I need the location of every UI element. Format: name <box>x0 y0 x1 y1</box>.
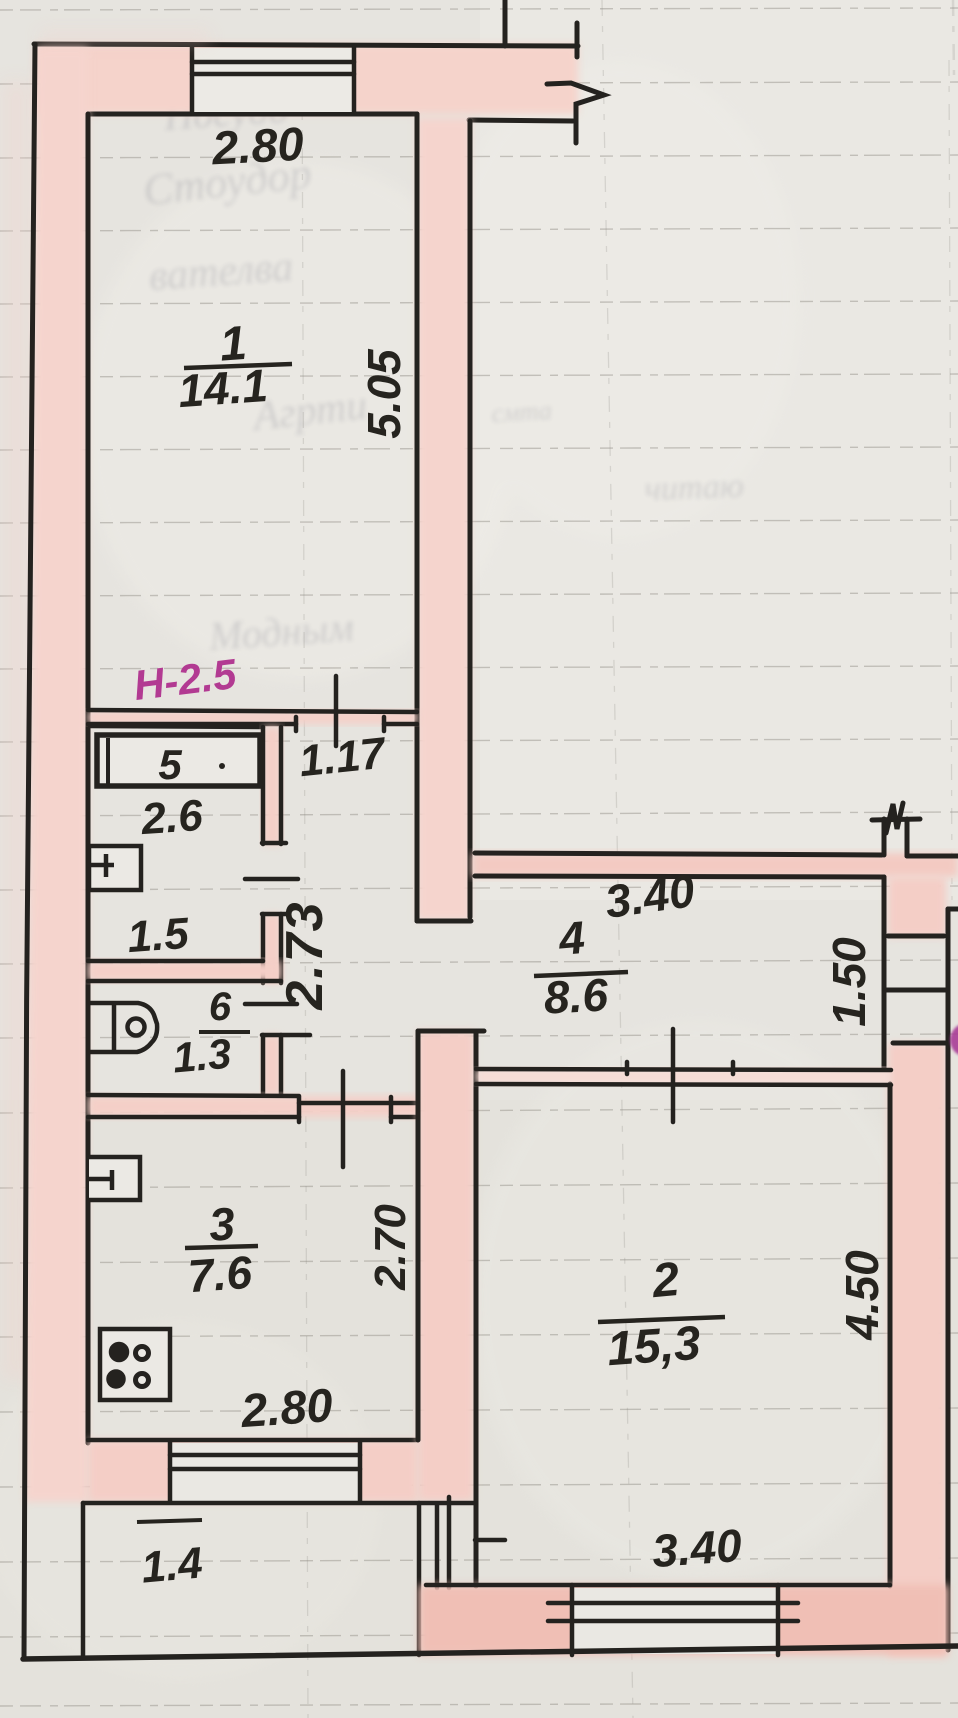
svg-text:читаю: читаю <box>644 468 744 508</box>
svg-text:5.05: 5.05 <box>358 348 410 439</box>
svg-text:3.40: 3.40 <box>650 1519 743 1577</box>
svg-text:1.4: 1.4 <box>139 1538 204 1592</box>
svg-text:2.80: 2.80 <box>210 117 305 175</box>
svg-text:14.1: 14.1 <box>176 359 269 417</box>
svg-text:4.50: 4.50 <box>836 1250 888 1341</box>
svg-text:2.73: 2.73 <box>276 900 334 1010</box>
svg-text:4: 4 <box>556 911 587 965</box>
svg-text:1.50: 1.50 <box>823 937 875 1027</box>
svg-text:8.6: 8.6 <box>543 968 610 1023</box>
svg-text:3: 3 <box>207 1197 237 1251</box>
svg-text:2.6: 2.6 <box>139 791 205 844</box>
svg-text:2.80: 2.80 <box>238 1378 334 1437</box>
svg-text:2.70: 2.70 <box>366 1204 415 1291</box>
svg-text:2: 2 <box>649 1253 682 1308</box>
svg-text:1.17: 1.17 <box>297 728 390 786</box>
svg-text:7.6: 7.6 <box>186 1246 254 1302</box>
svg-text:1.3: 1.3 <box>171 1030 233 1082</box>
svg-text:1.5: 1.5 <box>126 909 191 962</box>
svg-text:6: 6 <box>209 985 232 1029</box>
svg-text:5: 5 <box>158 741 182 788</box>
svg-text:15,3: 15,3 <box>605 1317 702 1376</box>
svg-text:смта: смта <box>491 396 553 428</box>
